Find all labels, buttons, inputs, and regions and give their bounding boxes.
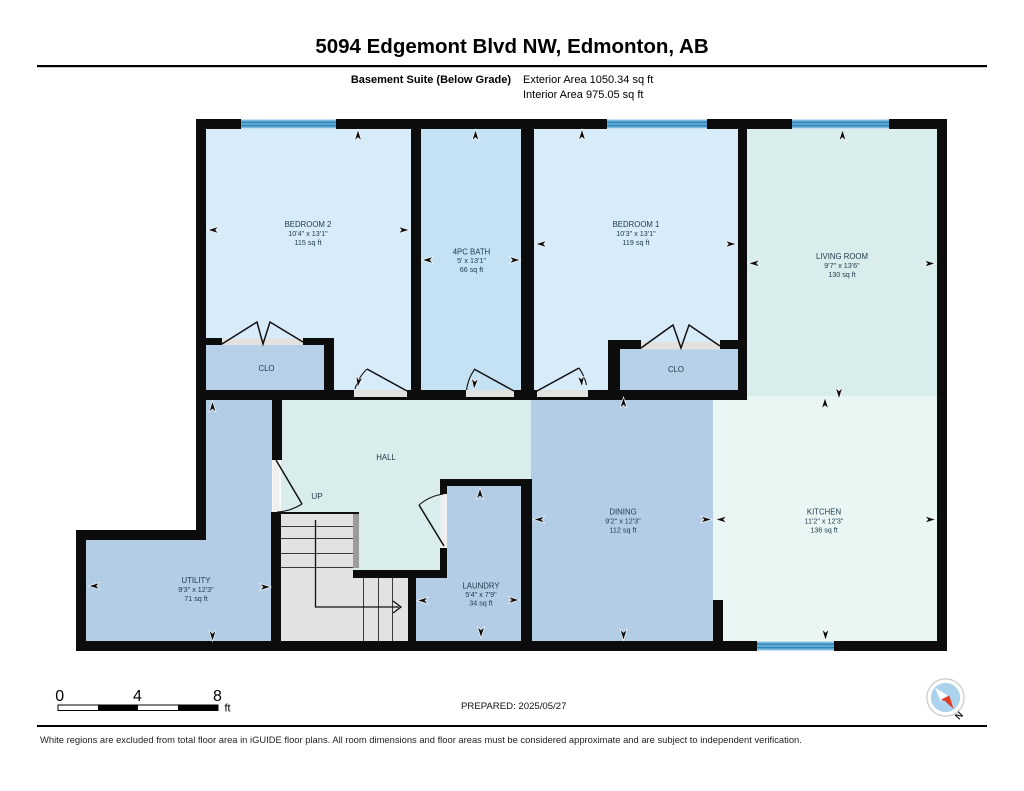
svg-text:11'2" x 12'3": 11'2" x 12'3" [805, 517, 844, 526]
svg-text:BEDROOM 2: BEDROOM 2 [285, 220, 332, 229]
svg-text:34 sq ft: 34 sq ft [469, 599, 493, 608]
svg-text:112 sq ft: 112 sq ft [609, 526, 636, 535]
svg-text:9'7" x 13'6": 9'7" x 13'6" [824, 261, 860, 270]
svg-text:71 sq ft: 71 sq ft [184, 594, 208, 603]
svg-text:PREPARED: 2025/05/27: PREPARED: 2025/05/27 [461, 701, 566, 712]
svg-text:LIVING ROOM: LIVING ROOM [816, 252, 868, 261]
svg-text:UP: UP [311, 491, 323, 501]
svg-text:8: 8 [213, 688, 222, 705]
svg-text:KITCHEN: KITCHEN [807, 508, 841, 517]
svg-text:Basement Suite (Below Grade): Basement Suite (Below Grade) [351, 74, 511, 86]
svg-text:5094 Edgemont Blvd NW, Edmonto: 5094 Edgemont Blvd NW, Edmonton, AB [315, 35, 708, 58]
svg-text:BEDROOM 1: BEDROOM 1 [613, 220, 660, 229]
svg-text:Exterior Area 1050.34 sq ft: Exterior Area 1050.34 sq ft [523, 74, 653, 86]
svg-text:Interior Area 975.05 sq ft: Interior Area 975.05 sq ft [523, 89, 643, 101]
svg-text:N: N [953, 710, 966, 723]
svg-text:130 sq ft: 130 sq ft [828, 270, 856, 279]
svg-text:CLO: CLO [668, 365, 684, 374]
svg-text:ft: ft [225, 703, 231, 715]
svg-text:66 sq ft: 66 sq ft [460, 265, 484, 274]
svg-text:10'4" x 13'1": 10'4" x 13'1" [288, 229, 328, 238]
svg-text:4: 4 [133, 688, 142, 705]
svg-text:5' x 13'1": 5' x 13'1" [457, 256, 486, 265]
svg-text:115 sq ft: 115 sq ft [294, 238, 321, 247]
svg-text:119 sq ft: 119 sq ft [622, 238, 649, 247]
svg-text:UTILITY: UTILITY [181, 576, 211, 585]
svg-text:HALL: HALL [376, 453, 396, 462]
svg-text:DINING: DINING [609, 508, 636, 517]
svg-text:9'3" x 12'3": 9'3" x 12'3" [178, 585, 214, 594]
svg-text:CLO: CLO [258, 364, 274, 373]
svg-text:9'2" x 12'3": 9'2" x 12'3" [605, 517, 641, 526]
svg-text:10'3" x 13'1": 10'3" x 13'1" [616, 229, 656, 238]
svg-text:White regions are excluded fro: White regions are excluded from total fl… [40, 734, 802, 745]
svg-text:0: 0 [55, 688, 64, 705]
svg-text:136 sq ft: 136 sq ft [810, 526, 838, 535]
